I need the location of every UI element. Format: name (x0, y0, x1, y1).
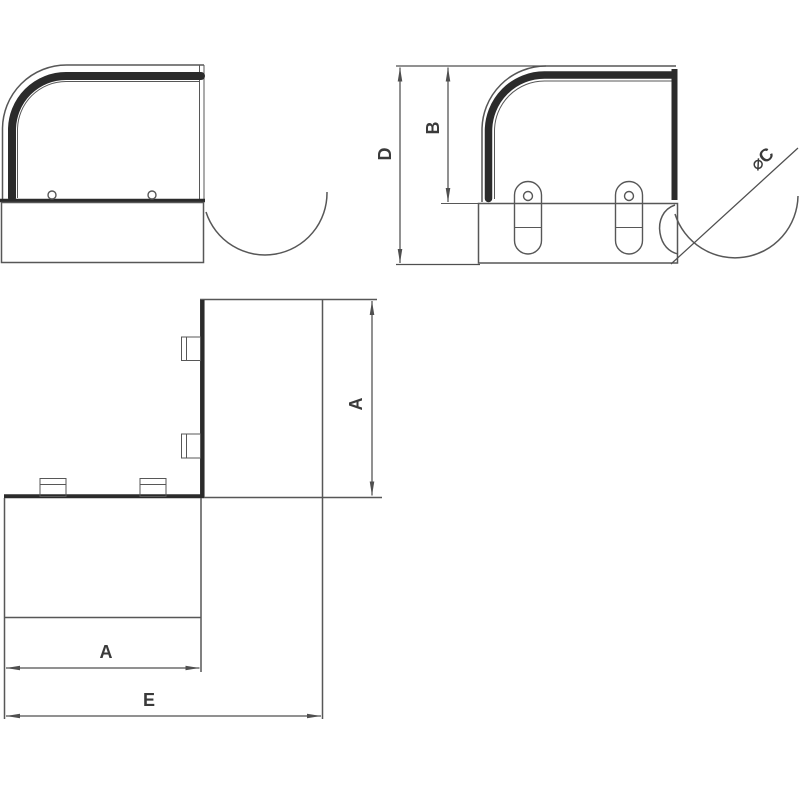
screw-hole (148, 191, 156, 199)
fixing-tab (182, 434, 201, 458)
fixing-tab (40, 479, 66, 497)
spigot-hook-curve (660, 205, 678, 254)
fixing-tab (140, 479, 166, 497)
screw-hole (48, 191, 56, 199)
dimension-bend-height: B (423, 68, 448, 203)
bent-sheet-band (12, 76, 201, 198)
leader-line (671, 148, 798, 264)
dimension-overall-height: D (375, 66, 546, 265)
base-plate (479, 204, 678, 264)
dimension-duct-width-vertical: A (346, 301, 372, 496)
technical-drawing-canvas: D B ⌀C (0, 0, 800, 800)
dimension-label-b: B (423, 122, 443, 135)
dimension-label-e: E (143, 690, 155, 710)
side-view-right (441, 66, 798, 263)
dimension-label-a-bottom: A (100, 642, 113, 662)
dimension-spigot-diameter: ⌀C (671, 144, 798, 264)
fixing-tab (182, 337, 201, 361)
dimension-label-a-side: A (346, 398, 366, 411)
dimension-label-d: D (375, 148, 395, 161)
side-view-left (0, 65, 327, 263)
round-spigot-arc (206, 192, 327, 255)
mounting-slot (515, 182, 542, 255)
dimension-overall-length: E (6, 690, 321, 716)
dimension-duct-width-horizontal: A (6, 642, 200, 668)
band-inner-line (495, 81, 673, 199)
bent-sheet-band (489, 75, 673, 199)
dimension-label-c: ⌀C (746, 144, 777, 175)
round-spigot-arc (675, 196, 798, 258)
mounting-slot (616, 182, 643, 255)
plan-view (4, 300, 382, 720)
band-inner-line (18, 82, 200, 199)
base-plate (2, 203, 204, 263)
